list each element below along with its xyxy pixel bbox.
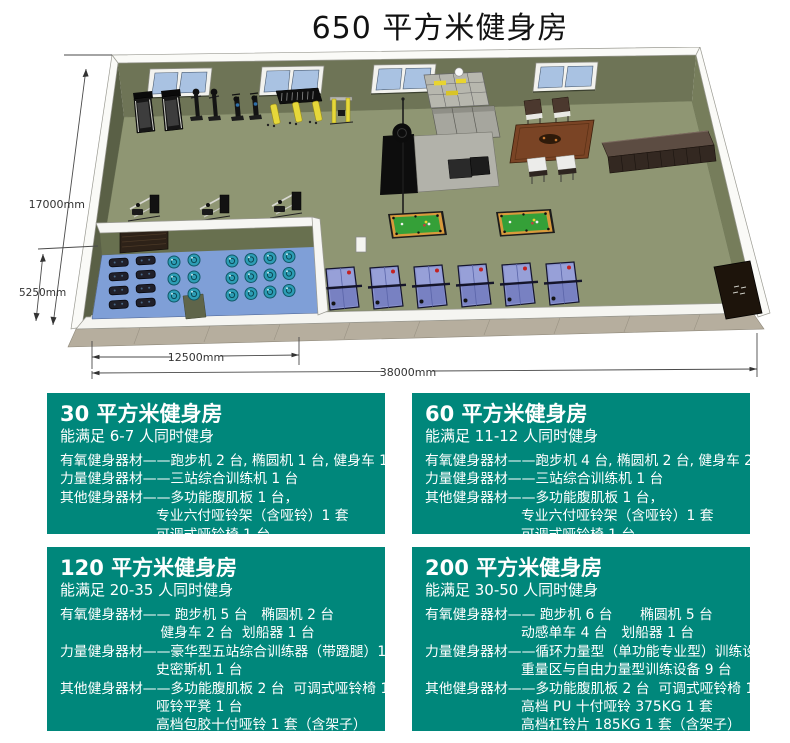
meeting-table [510, 120, 594, 163]
gray-mat [414, 132, 499, 192]
equipment-line: 健身车 2 台 划船器 1 台 [60, 624, 372, 642]
equipment-line: 其他健身器材——多功能腹肌板 2 台 可调式哑铃椅 1 台 [60, 680, 372, 698]
equipment-line: 史密斯机 1 台 [60, 661, 372, 679]
spin-studio [92, 217, 328, 319]
punching-bag [392, 123, 411, 142]
card-subtitle: 能满足 30-50 人同时健身 [425, 581, 737, 599]
equipment-line: 高档包胶十付哑铃 1 套（含架子） [60, 716, 372, 731]
equipment-line: 其他健身器材——多功能腹肌板 2 台 可调式哑铃椅 1 台 [425, 680, 737, 698]
treadmill-2 [161, 89, 183, 131]
equipment-line: 专业六付哑铃架（含哑铃）1 套 [60, 507, 372, 525]
card-title: 120 平方米健身房 [60, 556, 372, 580]
medicine-ball [455, 68, 463, 76]
equipment-line: 力量健身器材——循环力量型（单功能专业型）训练设备 7 台 [425, 643, 737, 661]
dim-height-label: 17000mm [29, 198, 85, 211]
card-title: 200 平方米健身房 [425, 556, 737, 580]
card-30sqm: 30 平方米健身房 能满足 6-7 人同时健身 有氧健身器材——跑步机 2 台,… [47, 393, 385, 534]
dim-studio-width-label: 12500mm [168, 351, 224, 364]
window-4 [533, 62, 598, 92]
card-body: 有氧健身器材——跑步机 4 台, 椭圆机 2 台, 健身车 2 台 力量健身器材… [425, 452, 737, 534]
equipment-line: 有氧健身器材—— 跑步机 5 台 椭圆机 2 台 [60, 606, 372, 624]
card-subtitle: 能满足 6-7 人同时健身 [60, 427, 372, 445]
gym-size-cards: 30 平方米健身房 能满足 6-7 人同时健身 有氧健身器材——跑步机 2 台,… [0, 387, 790, 731]
card-body: 有氧健身器材—— 跑步机 6 台 椭圆机 5 台 动感单车 4 台 划船器 1 … [425, 606, 737, 731]
equipment-line: 可调式哑铃椅 1 台 [60, 526, 372, 534]
dim-width-label: 38000mm [380, 366, 436, 379]
card-60sqm: 60 平方米健身房 能满足 11-12 人同时健身 有氧健身器材——跑步机 4 … [412, 393, 750, 534]
card-body: 有氧健身器材—— 跑步机 5 台 椭圆机 2 台 健身车 2 台 划船器 1 台… [60, 606, 372, 731]
floor-plan: 17000mm 5250mm 12500mm [0, 47, 790, 387]
equipment-line: 高档杠铃片 185KG 1 套（含架子） [425, 716, 737, 731]
dim-studio-depth-label: 5250mm [19, 287, 66, 299]
card-subtitle: 能满足 20-35 人同时健身 [60, 581, 372, 599]
card-120sqm: 120 平方米健身房 能满足 20-35 人同时健身 有氧健身器材—— 跑步机 … [47, 547, 385, 731]
equipment-line: 有氧健身器材——跑步机 4 台, 椭圆机 2 台, 健身车 2 台 [425, 452, 737, 470]
pool-table-1 [388, 211, 447, 239]
treadmill-1 [133, 91, 155, 133]
equipment-line: 动感单车 4 台 划船器 1 台 [425, 624, 737, 642]
equipment-line: 有氧健身器材—— 跑步机 6 台 椭圆机 5 台 [425, 606, 737, 624]
card-subtitle: 能满足 11-12 人同时健身 [425, 427, 737, 445]
page-title: 650 平方米健身房 [0, 0, 790, 47]
equipment-line: 哑铃平凳 1 台 [60, 698, 372, 716]
card-title: 60 平方米健身房 [425, 402, 737, 426]
card-title: 30 平方米健身房 [60, 402, 372, 426]
card-200sqm: 200 平方米健身房 能满足 30-50 人同时健身 有氧健身器材—— 跑步机 … [412, 547, 750, 731]
equipment-line: 重量区与自由力量型训练设备 9 台 [425, 661, 737, 679]
card-body: 有氧健身器材——跑步机 2 台, 椭圆机 1 台, 健身车 1 台 力量健身器材… [60, 452, 372, 534]
equipment-line: 力量健身器材——三站综合训练机 1 台 [425, 470, 737, 488]
page: 650 平方米健身房 [0, 0, 790, 743]
equipment-line: 其他健身器材——多功能腹肌板 1 台， [60, 489, 372, 507]
equipment-line: 其他健身器材——多功能腹肌板 1 台， [425, 489, 737, 507]
pool-table-2 [496, 209, 555, 237]
equipment-line: 高档 PU 十付哑铃 375KG 1 套 [425, 698, 737, 716]
equipment-line: 力量健身器材——三站综合训练机 1 台 [60, 470, 372, 488]
black-mat [380, 134, 418, 195]
equipment-line: 专业六付哑铃架（含哑铃）1 套 [425, 507, 737, 525]
pillar [356, 237, 366, 252]
equipment-line: 有氧健身器材——跑步机 2 台, 椭圆机 1 台, 健身车 1 台 [60, 452, 372, 470]
equipment-line: 力量健身器材——豪华型五站综合训练器（带蹬腿）1 台 [60, 643, 372, 661]
equipment-line: 可调式哑铃椅 1 台 [425, 526, 737, 534]
